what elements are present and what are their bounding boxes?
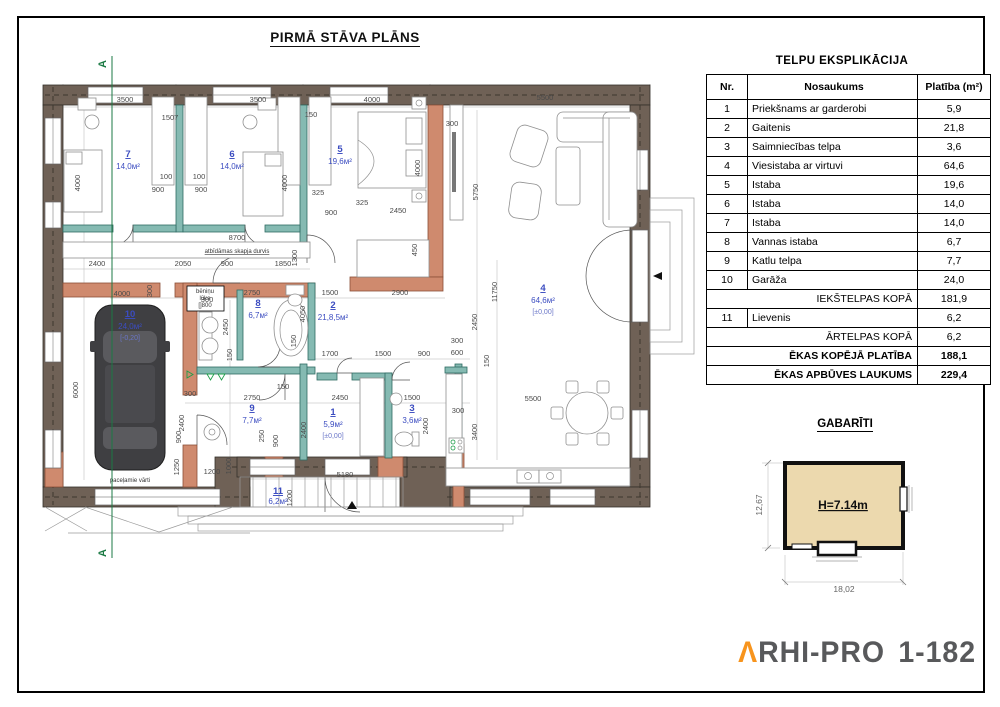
dim-label: 4000 (413, 160, 422, 177)
dim-label: 5180 (337, 470, 354, 479)
dim-label: 2450 (390, 206, 407, 215)
dim-label: 2050 (175, 259, 192, 268)
dim-label: 900 (418, 349, 431, 358)
sliding-closet-note: atbīdāmas skapja durvis (205, 249, 270, 255)
dim-label: 450 (410, 244, 419, 257)
dim-label: 300 (184, 389, 197, 398)
col-header-area: Platība (m²) (918, 75, 991, 100)
room-area: 14,0м² (220, 162, 244, 171)
dim-label: 4000 (73, 175, 82, 192)
logo-name: RHI-PRO (758, 636, 885, 669)
section-marker-top: A (97, 60, 109, 68)
dim-label: 900 (271, 435, 280, 448)
dim-label: 2400 (299, 422, 308, 439)
dim-label: 1850 (275, 259, 292, 268)
table-row: 6 Istaba 14,0 (707, 195, 991, 214)
dim-label: 2750 (244, 288, 261, 297)
room-area: 6,7м² (248, 311, 268, 320)
dim-label: 325 (356, 198, 369, 207)
table-header-row: Nr. Nosaukums Platība (m²) (707, 75, 991, 100)
table-row: 2 Gaitenis 21,8 (707, 119, 991, 138)
table-row: 7 Istaba 14,0 (707, 214, 991, 233)
table-row: 11 Lievenis 6,2 (707, 309, 991, 328)
dim-label: 3400 (470, 424, 479, 441)
dim-label: 100 (160, 172, 173, 181)
dim-label: 900 (325, 208, 338, 217)
table-row: 10 Garāža 24,0 (707, 271, 991, 290)
dim-label: 600 (451, 348, 464, 357)
dim-label: 900 (152, 185, 165, 194)
room-area: 21,8,5м² (318, 313, 349, 322)
dim-label: 1500 (375, 349, 392, 358)
dim-label: 150 (482, 355, 491, 368)
dim-label: 2900 (392, 288, 409, 297)
table-row: 8 Vannas istaba 6,7 (707, 233, 991, 252)
dim-label: 900 (174, 431, 183, 444)
room-number: 11 (273, 486, 284, 497)
dim-label: 1200 (204, 467, 221, 476)
gabariti-depth-dim: 12,67 (754, 494, 764, 516)
dim-label: 300 (145, 285, 154, 298)
dim-label: 325 (312, 188, 325, 197)
dim-label: 8700 (229, 233, 246, 242)
dim-label: 300 (446, 119, 459, 128)
room-area: 3,6м² (402, 416, 422, 425)
table-subtotal-row: IEKŠTELPAS KOPĀ 181,9 (707, 290, 991, 309)
room-number: 9 (249, 403, 254, 414)
dim-label: 11750 (490, 282, 499, 302)
drawing-sheet: PIRMĀ STĀVA PLĀNS (0, 0, 1000, 707)
dim-label: 5500 (525, 394, 542, 403)
brand-logo: ΛRHI-PRO1-182 (729, 636, 976, 670)
dim-label: 4000 (280, 175, 289, 192)
col-header-name: Nosaukums (748, 75, 918, 100)
table-total-row: ĒKAS KOPĒJĀ PLATĪBA 188,1 (707, 347, 991, 366)
gabariti-height-label: H=7.14m (818, 498, 868, 512)
gabariti-title: GABARĪTI (770, 418, 920, 430)
gabariti-width-dim: 18,02 (833, 584, 855, 594)
room-area: 24,0м² (118, 322, 142, 331)
dim-label: 4000 (114, 289, 131, 298)
dim-label: 6000 (71, 382, 80, 399)
dim-label: 1300 (290, 250, 299, 267)
table-subtotal-row: ĀRTELPAS KOPĀ 6,2 (707, 328, 991, 347)
room-area: 5,9м² (323, 420, 343, 429)
dim-label: 250 (257, 430, 266, 443)
dim-label: 2450 (332, 393, 349, 402)
dim-label: 2450 (221, 319, 230, 336)
dim-label: 1507 (162, 113, 179, 122)
room-elevation: [±0,00] (532, 309, 553, 316)
dim-label: 1700 (322, 349, 339, 358)
room-number: 2 (330, 300, 335, 311)
dim-label: 150 (277, 382, 290, 391)
dim-label: 2450 (470, 314, 479, 331)
room-number: 1 (330, 407, 336, 418)
table-row: 1 Priekšnams ar garderobi 5,9 (707, 100, 991, 119)
dim-label: 300 (452, 406, 465, 415)
dim-label: 4050 (298, 306, 307, 323)
dim-label: 2400 (421, 418, 430, 435)
section-marker-bottom: A (97, 549, 109, 557)
room-number: 6 (229, 149, 234, 160)
dim-label: 5500 (537, 93, 554, 102)
table-total-row: ĒKAS APBŪVES LAUKUMS 229,4 (707, 366, 991, 385)
table-row: 4 Viesistaba ar virtuvi 64,6 (707, 157, 991, 176)
logo-lambda: Λ (738, 636, 758, 669)
room-area: 64,6м² (531, 296, 555, 305)
explication-title: TELPU EKSPLIKĀCIJA (706, 55, 978, 67)
table-row: 9 Katlu telpa 7,7 (707, 252, 991, 271)
dim-label: 1000 (224, 458, 233, 475)
room-area: 7,7м² (242, 416, 262, 425)
dim-label: 5750 (471, 184, 480, 201)
room-number: 5 (337, 144, 343, 155)
dim-label: 3500 (117, 95, 134, 104)
room-area: 19,6м² (328, 157, 352, 166)
room-number: 10 (125, 309, 136, 320)
garage-gate-note: paceļamie vārti (110, 478, 150, 484)
dim-label: 1500 (404, 393, 421, 402)
table-row: 3 Saimniecības telpa 3,6 (707, 138, 991, 157)
dim-label: 2400 (177, 415, 186, 432)
dim-label: 150 (225, 349, 234, 362)
dim-label: 3500 (250, 95, 267, 104)
dim-label: 2400 (89, 259, 106, 268)
explication-table: Nr. Nosaukums Platība (m²) 1 Priekšnams … (706, 74, 991, 385)
dim-label: 900 (221, 259, 234, 268)
room-area: 6,2м² (268, 497, 288, 506)
dim-label: 300 (451, 336, 464, 345)
gabariti-diagram: H=7.14m 12,67 18,02 (754, 460, 912, 594)
room-number: 8 (255, 298, 260, 309)
dim-label: 150 (305, 110, 318, 119)
room-number: 4 (540, 283, 546, 294)
room-elevation: [-0,20] (120, 335, 140, 342)
dim-label: 150 (289, 335, 298, 348)
dim-label: 4000 (364, 95, 381, 104)
room-elevation: [±0,00] (322, 433, 343, 440)
dim-label: 900 (195, 185, 208, 194)
logo-code: 1-182 (898, 636, 976, 669)
room-area: 14,0м² (116, 162, 140, 171)
room-number: 3 (409, 403, 414, 414)
table-row: 5 Istaba 19,6 (707, 176, 991, 195)
room-number: 7 (125, 149, 130, 160)
dim-label: 2750 (244, 393, 261, 402)
dim-label: 1500 (322, 288, 339, 297)
dim-label: 1250 (172, 459, 181, 476)
col-header-nr: Nr. (707, 75, 748, 100)
dim-label: 100 (193, 172, 206, 181)
dim-label: 300 (201, 295, 214, 304)
